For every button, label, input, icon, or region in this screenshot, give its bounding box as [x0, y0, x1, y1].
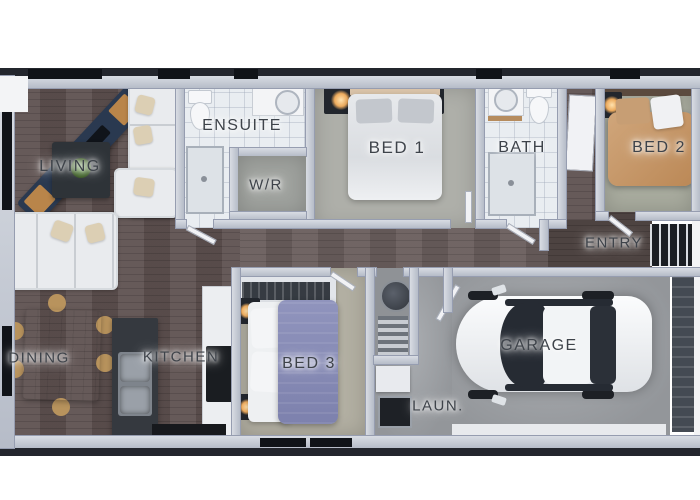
garage-door — [672, 276, 694, 432]
wall-bed2-right — [692, 76, 700, 216]
wall-closet-bed2 — [596, 88, 604, 220]
wall-wr-top — [230, 148, 306, 156]
outer-wall-bottom — [0, 448, 700, 456]
bed3-window — [310, 438, 352, 447]
room-label-bed3: BED 3 — [282, 355, 336, 373]
wall-bath-closet — [558, 88, 566, 228]
bed2-pillow-tan — [615, 97, 650, 125]
ensuite-window — [158, 69, 190, 79]
car-wheel — [582, 390, 614, 399]
room-label-bed2: BED 2 — [632, 139, 686, 157]
wall-wr-bottom — [230, 212, 306, 220]
wall-cupboard-laundry — [410, 268, 418, 362]
wall-wr-left — [230, 148, 238, 214]
door-mat — [152, 424, 226, 436]
shower — [186, 146, 224, 214]
bath-window — [476, 69, 502, 79]
floor-plan: LIVING ENSUITE W/R BED 1 BATH BED 2 ENTR… — [0, 0, 700, 500]
corner-deck — [0, 76, 28, 112]
room-label-bed1: BED 1 — [369, 138, 426, 158]
garage-door-outside — [694, 268, 700, 436]
wall-top-face — [0, 76, 700, 88]
bath-shower — [488, 152, 536, 216]
wall-low-1 — [232, 268, 330, 276]
porch — [692, 212, 700, 268]
wall-kitchen-bed3 — [232, 268, 240, 436]
outer-wall-top — [0, 68, 700, 76]
bed1-pillow — [398, 98, 435, 123]
garage-apron — [452, 424, 666, 436]
room-label-entry: ENTRY — [585, 235, 643, 252]
living-window — [28, 69, 102, 79]
wall-living-ensuite — [176, 88, 184, 228]
room-label-ensuite: ENSUITE — [202, 117, 282, 135]
wall-bed2-bottom1 — [596, 212, 608, 220]
wall-mid-a2 — [214, 220, 450, 228]
room-label-bath: BATH — [498, 139, 545, 157]
sofa-pillow — [133, 177, 155, 198]
bed3-window — [260, 438, 306, 447]
wall-bed1-bath — [476, 88, 484, 228]
shower-drain — [201, 176, 207, 182]
wall-mid-a1 — [176, 220, 186, 228]
dining-chair — [52, 398, 70, 416]
bed2-window — [610, 69, 640, 79]
laundry-tub — [378, 396, 412, 428]
room-label-kitchen: KITCHEN — [143, 349, 219, 366]
room-label-wr: W/R — [249, 177, 283, 194]
wall-mid-a3 — [476, 220, 506, 228]
wall-bed3-cupboard — [366, 268, 374, 436]
closet-door — [566, 95, 596, 170]
bed2-pillow-white — [650, 94, 684, 130]
wall-bed2-bottom2 — [636, 212, 700, 220]
ensuite-window2 — [234, 69, 258, 79]
basin — [275, 90, 300, 115]
vanity — [252, 86, 304, 116]
sofa-pillow — [133, 125, 154, 146]
room-label-laundry: LAUN. — [412, 398, 464, 415]
hot-water-cylinder — [380, 280, 412, 312]
car-rear-glass — [590, 306, 616, 384]
room-label-living: LIVING — [39, 158, 100, 176]
bed1-pillow — [356, 98, 393, 123]
cupboard-shelves — [378, 316, 408, 356]
room-label-garage: GARAGE — [500, 337, 577, 355]
left-window — [2, 112, 12, 210]
bath-shower-drain — [508, 180, 514, 186]
wall-ensuite-bed1 — [306, 88, 314, 228]
sink-bowl — [120, 386, 150, 414]
wall-hall-entry-stub — [540, 220, 548, 250]
front-door — [650, 224, 692, 266]
laundry-bench — [376, 366, 410, 392]
wall-cupboard-bottom — [374, 356, 418, 364]
room-label-dining: DINING — [8, 350, 70, 367]
wall-laundry-garage-stub — [444, 268, 452, 312]
bath-shelf — [488, 116, 522, 121]
bed1-door — [466, 192, 471, 222]
bath-basin — [494, 88, 518, 112]
